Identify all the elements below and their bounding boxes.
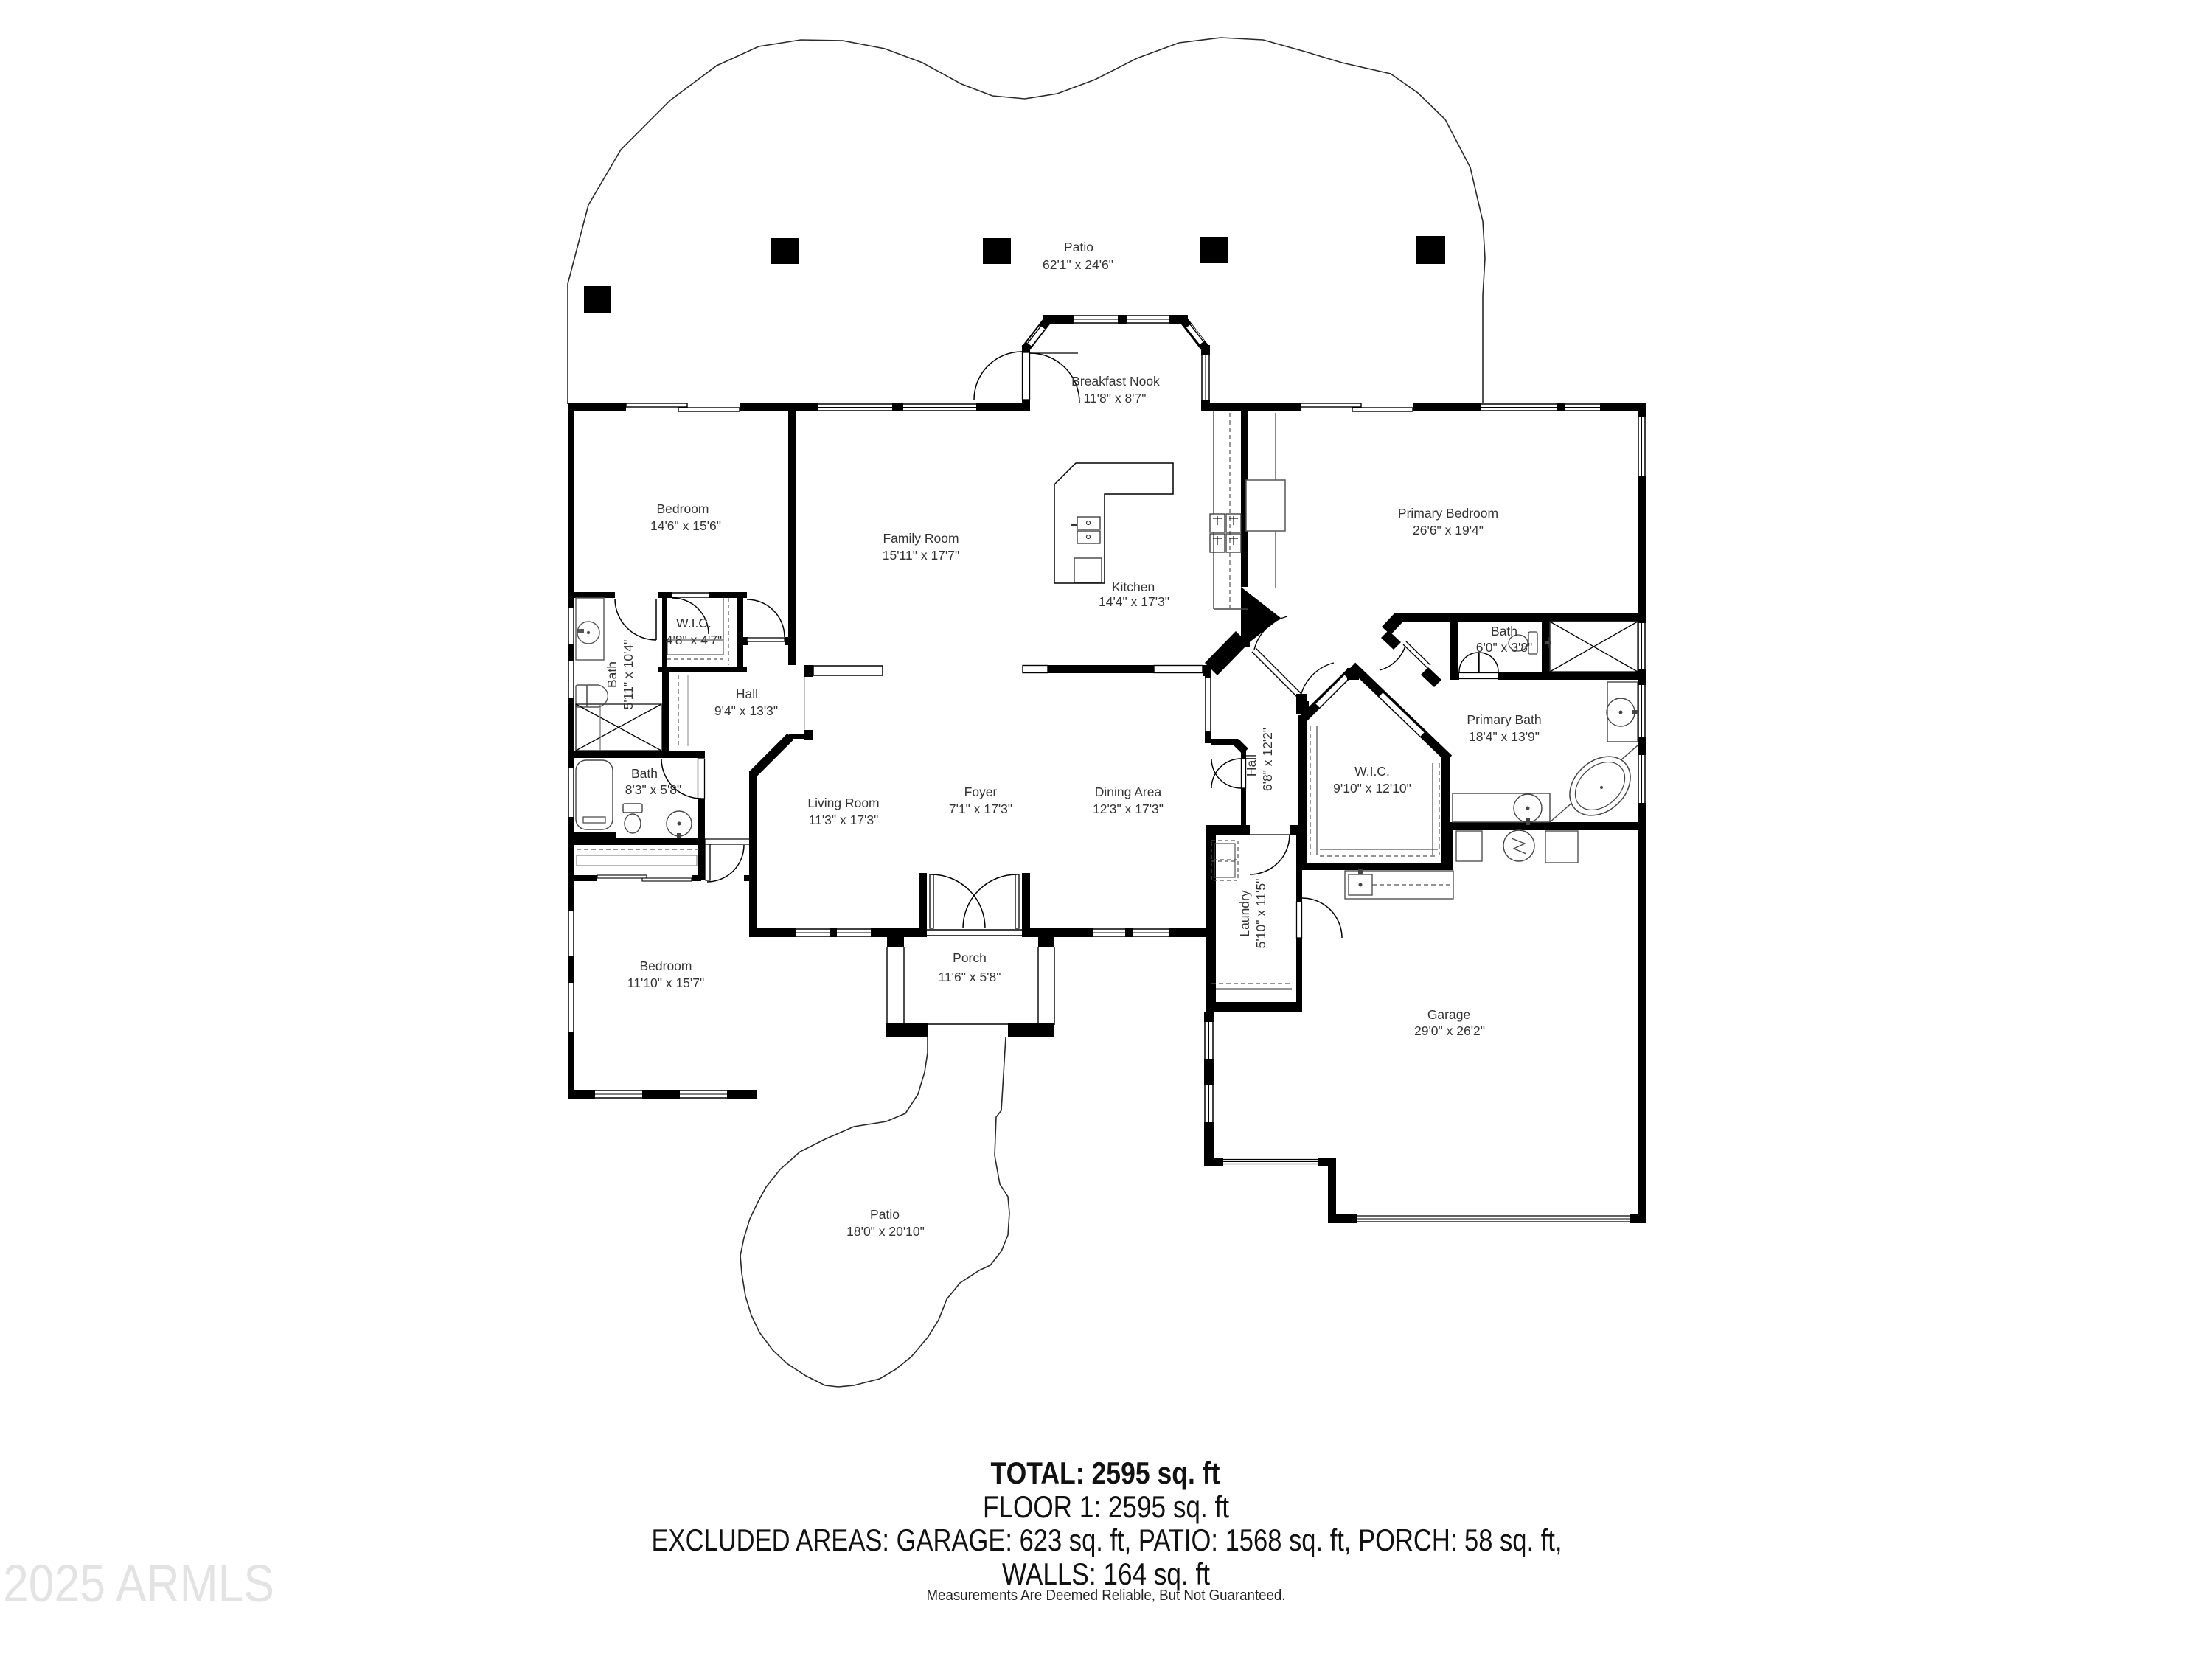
svg-text:11'10" x 15'7": 11'10" x 15'7" bbox=[627, 975, 704, 990]
svg-text:W.I.C.: W.I.C. bbox=[1354, 764, 1390, 779]
svg-text:14'4" x 17'3": 14'4" x 17'3" bbox=[1099, 594, 1169, 609]
svg-text:11'3" x 17'3": 11'3" x 17'3" bbox=[809, 813, 879, 827]
svg-text:Patio: Patio bbox=[1064, 240, 1093, 254]
svg-text:29'0" x 26'2": 29'0" x 26'2" bbox=[1414, 1023, 1485, 1038]
svg-text:4'8" x 4'7": 4'8" x 4'7" bbox=[666, 633, 723, 647]
svg-text:Bedroom: Bedroom bbox=[639, 959, 692, 973]
svg-text:Primary Bedroom: Primary Bedroom bbox=[1398, 506, 1498, 521]
svg-text:6'8" x 12'2": 6'8" x 12'2" bbox=[1260, 728, 1275, 791]
svg-text:2025 ARMLS: 2025 ARMLS bbox=[3, 1555, 274, 1613]
svg-text:Breakfast Nook: Breakfast Nook bbox=[1071, 374, 1160, 389]
svg-text:Measurements Are Deemed Reliab: Measurements Are Deemed Reliable, But No… bbox=[927, 1587, 1286, 1604]
svg-text:12'3" x 17'3": 12'3" x 17'3" bbox=[1093, 801, 1164, 816]
svg-text:5'10" x 11'5": 5'10" x 11'5" bbox=[1253, 879, 1268, 949]
svg-text:15'11" x 17'7": 15'11" x 17'7" bbox=[883, 548, 959, 563]
svg-text:EXCLUDED AREAS: GARAGE: 623 sq: EXCLUDED AREAS: GARAGE: 623 sq. ft, PATI… bbox=[652, 1523, 1562, 1557]
svg-text:W.I.C.: W.I.C. bbox=[676, 616, 712, 630]
svg-text:Dining Area: Dining Area bbox=[1095, 785, 1162, 799]
svg-text:9'10" x 12'10": 9'10" x 12'10" bbox=[1333, 781, 1411, 796]
svg-text:Porch: Porch bbox=[953, 950, 987, 965]
svg-text:8'3" x 5'8": 8'3" x 5'8" bbox=[625, 782, 682, 797]
svg-text:WALLS: 164 sq. ft: WALLS: 164 sq. ft bbox=[1002, 1557, 1210, 1591]
svg-text:11'8" x 8'7": 11'8" x 8'7" bbox=[1084, 391, 1147, 406]
svg-text:Living Room: Living Room bbox=[807, 796, 879, 810]
svg-text:Kitchen: Kitchen bbox=[1112, 580, 1155, 594]
svg-text:Family Room: Family Room bbox=[883, 531, 959, 546]
svg-text:Bedroom: Bedroom bbox=[656, 501, 709, 516]
svg-text:TOTAL: 2595 sq. ft: TOTAL: 2595 sq. ft bbox=[991, 1455, 1220, 1490]
svg-text:18'0" x 20'10": 18'0" x 20'10" bbox=[846, 1224, 925, 1239]
svg-text:Foyer: Foyer bbox=[964, 785, 998, 799]
svg-text:FLOOR 1: 2595 sq. ft: FLOOR 1: 2595 sq. ft bbox=[983, 1489, 1229, 1524]
svg-text:5'11" x 10'4": 5'11" x 10'4" bbox=[621, 640, 636, 710]
svg-text:11'6" x 5'8": 11'6" x 5'8" bbox=[939, 970, 1001, 984]
svg-text:9'4" x 13'3": 9'4" x 13'3" bbox=[714, 703, 778, 718]
svg-text:Hall: Hall bbox=[736, 686, 758, 701]
svg-text:Primary Bath: Primary Bath bbox=[1467, 712, 1541, 727]
svg-text:26'6" x 19'4": 26'6" x 19'4" bbox=[1413, 523, 1484, 538]
svg-text:Bath: Bath bbox=[605, 661, 619, 688]
svg-text:18'4" x 13'9": 18'4" x 13'9" bbox=[1469, 729, 1540, 744]
svg-text:Patio: Patio bbox=[870, 1207, 900, 1222]
svg-text:Bath: Bath bbox=[631, 766, 658, 781]
svg-text:14'6" x 15'6": 14'6" x 15'6" bbox=[650, 518, 721, 533]
svg-text:62'1" x 24'6": 62'1" x 24'6" bbox=[1043, 257, 1113, 272]
svg-text:Bath: Bath bbox=[1491, 624, 1517, 639]
svg-text:Garage: Garage bbox=[1427, 1007, 1470, 1022]
svg-text:Laundry: Laundry bbox=[1237, 890, 1252, 936]
svg-text:6'0" x 3'8": 6'0" x 3'8" bbox=[1476, 640, 1533, 655]
svg-text:7'1" x 17'3": 7'1" x 17'3" bbox=[949, 801, 1012, 816]
